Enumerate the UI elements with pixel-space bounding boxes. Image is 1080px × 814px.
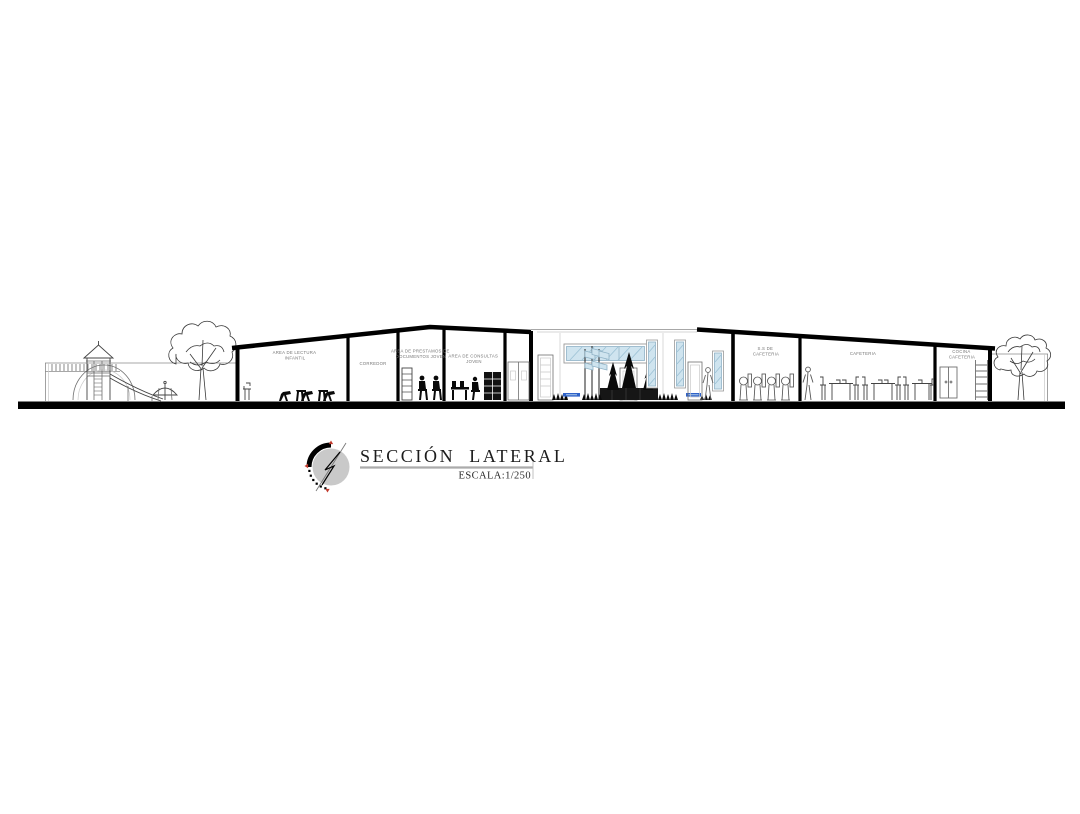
north-arrow-compass-icon xyxy=(305,441,350,493)
building-right-wing xyxy=(697,330,995,402)
person-standing-cafeteria xyxy=(803,367,813,400)
loans-room-furniture xyxy=(402,368,442,400)
room-label-cocina-cafeteria: COCINA CAFETERIA xyxy=(949,349,975,360)
cafeteria-tables xyxy=(820,377,934,400)
slim-windows xyxy=(647,340,724,391)
entry-door-left xyxy=(538,355,553,400)
tree-left xyxy=(169,321,236,400)
room-label-consultas: AREA DE CONSULTAS JOVEN xyxy=(448,354,499,365)
person-standing-atrium xyxy=(703,368,713,400)
section-title: SECCIÓN LATERAL xyxy=(360,445,568,466)
drawing-sheet: AREA DE LECTURA INFANTIL CORREDOR AREA D… xyxy=(0,0,1080,814)
spring-toy xyxy=(153,381,177,400)
tree-right xyxy=(994,335,1051,400)
room-label-lectura-infantil: AREA DE LECTURA INFANTIL xyxy=(273,350,318,361)
building-atrium xyxy=(531,330,724,401)
ground-plane xyxy=(18,402,1065,410)
double-door xyxy=(508,362,529,400)
room-label-cafeteria: CAFETERIA xyxy=(850,351,876,356)
playground xyxy=(45,321,236,401)
site-right xyxy=(992,335,1051,401)
kitchen-equipment xyxy=(940,360,988,400)
room-label-prestamos: AREA DE PRESTAMOS DE DOCUMENTOS JOVEN xyxy=(391,349,451,360)
restroom-fixtures xyxy=(739,374,794,400)
title-block: SECCIÓN LATERAL ESCALA:1/250 xyxy=(305,441,568,493)
children-reading-furniture xyxy=(243,383,335,401)
roof-left-wing xyxy=(232,327,531,348)
scale-label: ESCALA:1/250 xyxy=(459,471,531,482)
room-label-ss-cafeteria: S.S DE CAFETERIA xyxy=(753,346,779,357)
roof-right-wing xyxy=(697,330,995,349)
consultation-room-furniture xyxy=(451,372,501,400)
section-drawing-canvas: AREA DE LECTURA INFANTIL CORREDOR AREA D… xyxy=(0,0,1080,814)
slide xyxy=(110,374,163,401)
room-label-corredor: CORREDOR xyxy=(359,361,386,366)
